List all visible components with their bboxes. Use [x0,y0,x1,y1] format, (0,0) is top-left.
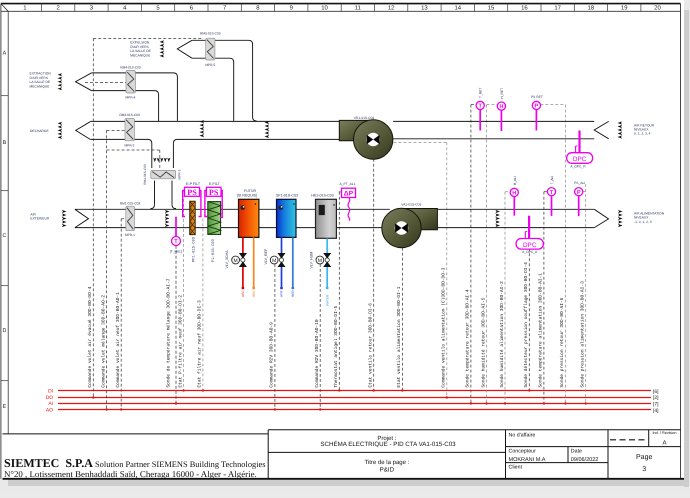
svg-text:Etat P-filtre air neuf 3OD-BO-: Etat P-filtre air neuf 3OD-BO-DI-2 [177,295,183,388]
svg-text:Ind. / Revision: Ind. / Revision [652,431,676,435]
svg-text:WATER: WATER [325,294,329,306]
svg-text:H_ALI: H_ALI [513,176,517,185]
svg-text:A: A [662,439,666,446]
svg-text:AO: AO [46,408,53,414]
svg-text:14: 14 [454,5,461,12]
svg-text:Sonde humidité alimentation 3O: Sonde humidité alimentation 3OD-BO-AI-2 [499,281,505,388]
svg-text:DPC: DPC [573,156,587,163]
svg-text:FUTUR: FUTUR [244,189,257,193]
svg-text:A_DPC_R: A_DPC_R [570,164,586,168]
svg-text:3: 3 [642,466,646,473]
svg-text:T_ALI: T_ALI [550,176,554,185]
svg-text:PS_ALI: PS_ALI [574,181,585,185]
svg-text:[T_MEL]: [T_MEL] [170,249,183,253]
svg-text:[SI REQUIS]: [SI REQUIS] [237,193,257,197]
svg-text:RM1-01S-C03: RM1-01S-C03 [120,201,141,205]
svg-text:PS: PS [187,188,197,197]
svg-text:C: C [2,233,6,239]
svg-text:RM3-01S-C03: RM3-01S-C03 [119,113,140,117]
svg-text:E-P FILT: E-P FILT [186,182,201,186]
svg-text:Sonde pression alimentation 3O: Sonde pression alimentation 3OD-BO-AI-3 [580,281,586,388]
svg-text:T: T [174,239,178,245]
svg-text:MPR-5: MPR-5 [205,63,215,67]
svg-text:HE1-01S-C03: HE1-01S-C03 [311,193,333,197]
svg-text:12: 12 [388,5,395,12]
svg-text:Sonde humidité retour 3OD-BO-A: Sonde humidité retour 3OD-BO-AI-5 [480,297,486,387]
svg-text:Etat ventilo retour 3OD-BO-DI-: Etat ventilo retour 3OD-BO-DI-6 [368,303,374,388]
svg-text:T: T [478,104,482,110]
svg-text:E-FILT: E-FILT [209,182,221,186]
svg-text:MOKRANI M.A: MOKRANI M.A [509,457,546,463]
svg-text:7: 7 [223,5,226,12]
svg-text:10: 10 [321,5,328,12]
svg-text:DO: DO [46,395,54,401]
svg-text:0, 1, 2, 3, 4: 0, 1, 2, 3, 4 [634,132,651,136]
svg-text:H: H [512,191,516,197]
svg-text:Concepteur: Concepteur [509,448,537,454]
svg-text:M: M [234,258,238,264]
svg-text:15: 15 [488,5,495,12]
svg-text:19: 19 [621,5,628,12]
svg-text:Commande volet air évacué 3OD-: Commande volet air évacué 3OD-BO-DO-4 [87,286,93,387]
svg-text:VA1-01S-C03: VA1-01S-C03 [401,203,421,207]
svg-text:T: T [550,190,554,196]
svg-text:H: H [499,104,503,110]
svg-text:DPC: DPC [523,242,537,249]
svg-text:RM4-01S-C03: RM4-01S-C03 [120,66,141,70]
svg-text:Date: Date [571,448,582,454]
svg-text:P&ID: P&ID [380,467,395,474]
svg-text:RER: RER [291,290,295,297]
svg-text:Etat filtre air neuf 3OD-BO-DI: Etat filtre air neuf 3OD-BO-DI-3 [197,300,203,388]
svg-text:[7]: [7] [653,401,659,407]
svg-text:17: 17 [554,5,561,12]
svg-text:Client: Client [509,464,523,470]
svg-text:PS: PS [209,188,219,197]
svg-text:Titre de la page :: Titre de la page : [364,459,409,466]
svg-text:VLV_REF: VLV_REF [264,248,268,265]
svg-text:D: D [2,328,6,334]
svg-text:DECHARGE: DECHARGE [30,129,49,133]
svg-text:9: 9 [290,5,293,12]
svg-text:Sonde détecteur pression souff: Sonde détecteur pression soufflage 3OD-B… [523,262,529,388]
svg-text:M: M [318,258,322,264]
svg-text:Commande volet air neuf 3OD-BO: Commande volet air neuf 3OD-BO-AO-1 [115,292,121,388]
svg-text:H_RET: H_RET [500,88,504,99]
svg-text:DI: DI [48,389,53,395]
svg-text:[6]: [6] [653,389,659,395]
svg-text:AFR: AFR [280,290,284,297]
svg-text:VLV_3CHA: VLV_3CHA [225,250,229,269]
svg-text:EXTERIEUR: EXTERIEUR [30,217,49,221]
svg-text:11: 11 [355,5,361,12]
svg-text:Commande R2V 3OD-BO-AO-10: Commande R2V 3OD-BO-AO-10 [314,319,320,387]
svg-text:[2]: [2] [653,395,659,401]
svg-text:Sonde de température mélange 3: Sonde de température mélange 3OD-BO-AI-7 [166,278,172,387]
svg-text:20: 20 [654,5,661,12]
svg-text:N°20 , Lotissement Benhaddadi: N°20 , Lotissement Benhaddadi Saïd, Cher… [4,469,257,479]
svg-text:A_PT_AL1: A_PT_AL1 [340,182,356,186]
svg-text:No d'affaire: No d'affaire [509,433,536,439]
svg-text:VLV_HUM: VLV_HUM [309,252,313,269]
svg-text:MECANIQUE: MECANIQUE [130,53,151,57]
svg-text:MECANIQUE: MECANIQUE [30,84,51,88]
svg-text:P: P [535,104,539,110]
svg-text:Commande ventilo alimentation: Commande ventilo alimentation (C)3OD-BO-… [441,267,447,387]
svg-text:F1-01S-C03: F1-01S-C03 [211,238,216,262]
svg-text:Commande volet mélange 3OD-BO-: Commande volet mélange 3OD-BO-AO-2 [100,295,106,388]
svg-text:[4]: [4] [653,408,659,414]
svg-text:P: P [577,190,581,196]
svg-text:-1, 0, 1, 2, 3: -1, 0, 1, 2, 3 [634,220,652,224]
svg-text:MPR-2: MPR-2 [125,143,135,147]
svg-text:REC: REC [252,290,256,297]
svg-text:SF1-01S-C03: SF1-01S-C03 [276,193,298,197]
svg-text:SCHÉMA ELECTRIQUE - PID CTA VA: SCHÉMA ELECTRIQUE - PID CTA VA1-015-C03 [320,440,456,448]
svg-text:1: 1 [23,5,26,12]
svg-text:Commande R2V 3OD-BO-AO-9: Commande R2V 3OD-BO-AO-9 [269,322,275,388]
svg-text:A_DPC_A: A_DPC_A [522,250,538,254]
svg-text:Thermostat antigel 3OD-BO-DI-5: Thermostat antigel 3OD-BO-DI-5 [333,305,339,387]
svg-text:09/06/2022: 09/06/2022 [571,457,599,463]
svg-text:AI: AI [48,401,53,407]
svg-text:18: 18 [588,5,595,12]
svg-text:E: E [3,404,7,410]
svg-text:16: 16 [521,5,528,12]
svg-text:PS RET: PS RET [531,95,543,99]
svg-text:Sonde température retour 3OD-B: Sonde température retour 3OD-BO-AI-4 [465,289,471,388]
svg-text:AEC: AEC [241,290,245,297]
svg-text:Page: Page [636,454,652,461]
svg-text:MPR-1: MPR-1 [125,233,135,237]
svg-text:MPR-3: MPR-3 [177,169,181,179]
svg-text:Etat ventilo alimentation 3OD-: Etat ventilo alimentation 3OD-BO-DI-1 [396,286,402,387]
svg-text:RM5-01S-C03: RM5-01S-C03 [200,32,221,36]
svg-text:ΔP: ΔP [344,191,354,198]
svg-text:Sonde pression retour 3OD-BO-A: Sonde pression retour 3OD-BO-AI-6 [559,297,565,387]
svg-text:Sonde température alimentation: Sonde température alimentation 3OD-BO-AI… [538,273,544,388]
svg-text:MPR-4: MPR-4 [126,96,136,100]
svg-text:M: M [272,258,276,264]
svg-text:2: 2 [57,5,60,12]
svg-text:PF1-01S-C03: PF1-01S-C03 [191,236,196,262]
svg-text:VR1-01S-C03: VR1-01S-C03 [354,116,375,120]
svg-text:A: A [3,51,7,57]
svg-text:B: B [3,140,7,146]
svg-text:RM4-01S-C03: RM4-01S-C03 [143,164,147,185]
svg-text:13: 13 [421,5,428,12]
svg-text:T_RET: T_RET [479,88,483,98]
